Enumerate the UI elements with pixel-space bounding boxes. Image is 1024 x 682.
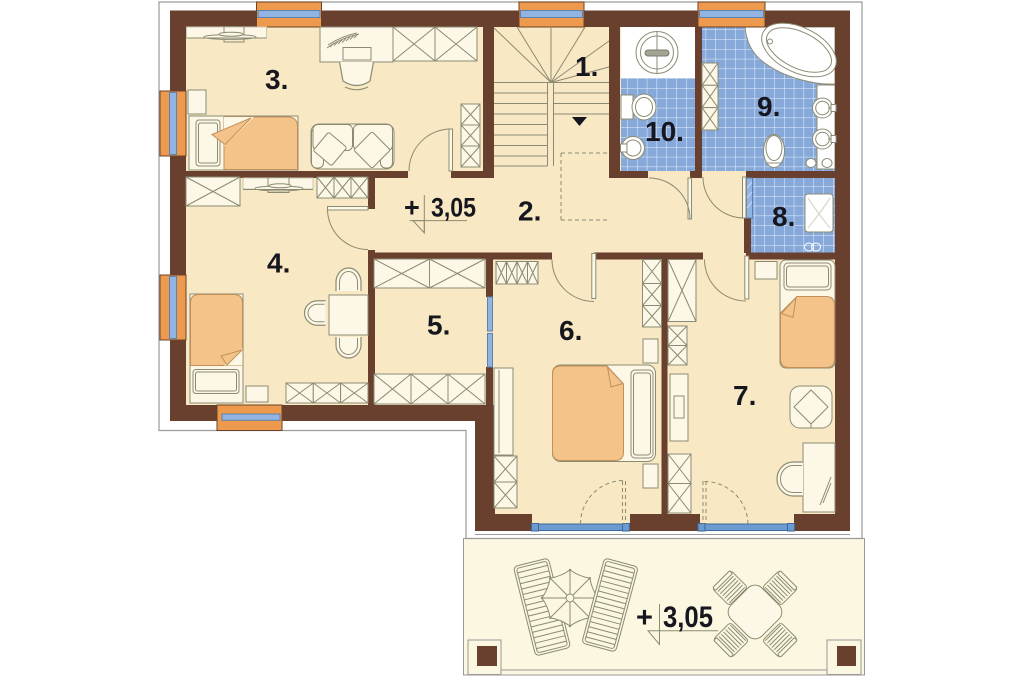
svg-text:9.: 9. [757,91,780,122]
svg-text:8.: 8. [772,201,795,232]
svg-text:7.: 7. [733,380,756,411]
svg-text:3.: 3. [265,64,288,95]
svg-text:+: + [404,193,420,223]
svg-text:3,05: 3,05 [431,193,476,223]
svg-text:2.: 2. [518,196,541,227]
svg-text:3,05: 3,05 [663,601,713,634]
svg-text:+: + [636,602,653,634]
svg-text:4.: 4. [267,248,290,279]
svg-text:6.: 6. [559,315,582,346]
svg-text:1.: 1. [575,51,598,82]
svg-text:5.: 5. [427,310,450,341]
svg-text:10.: 10. [645,116,684,147]
